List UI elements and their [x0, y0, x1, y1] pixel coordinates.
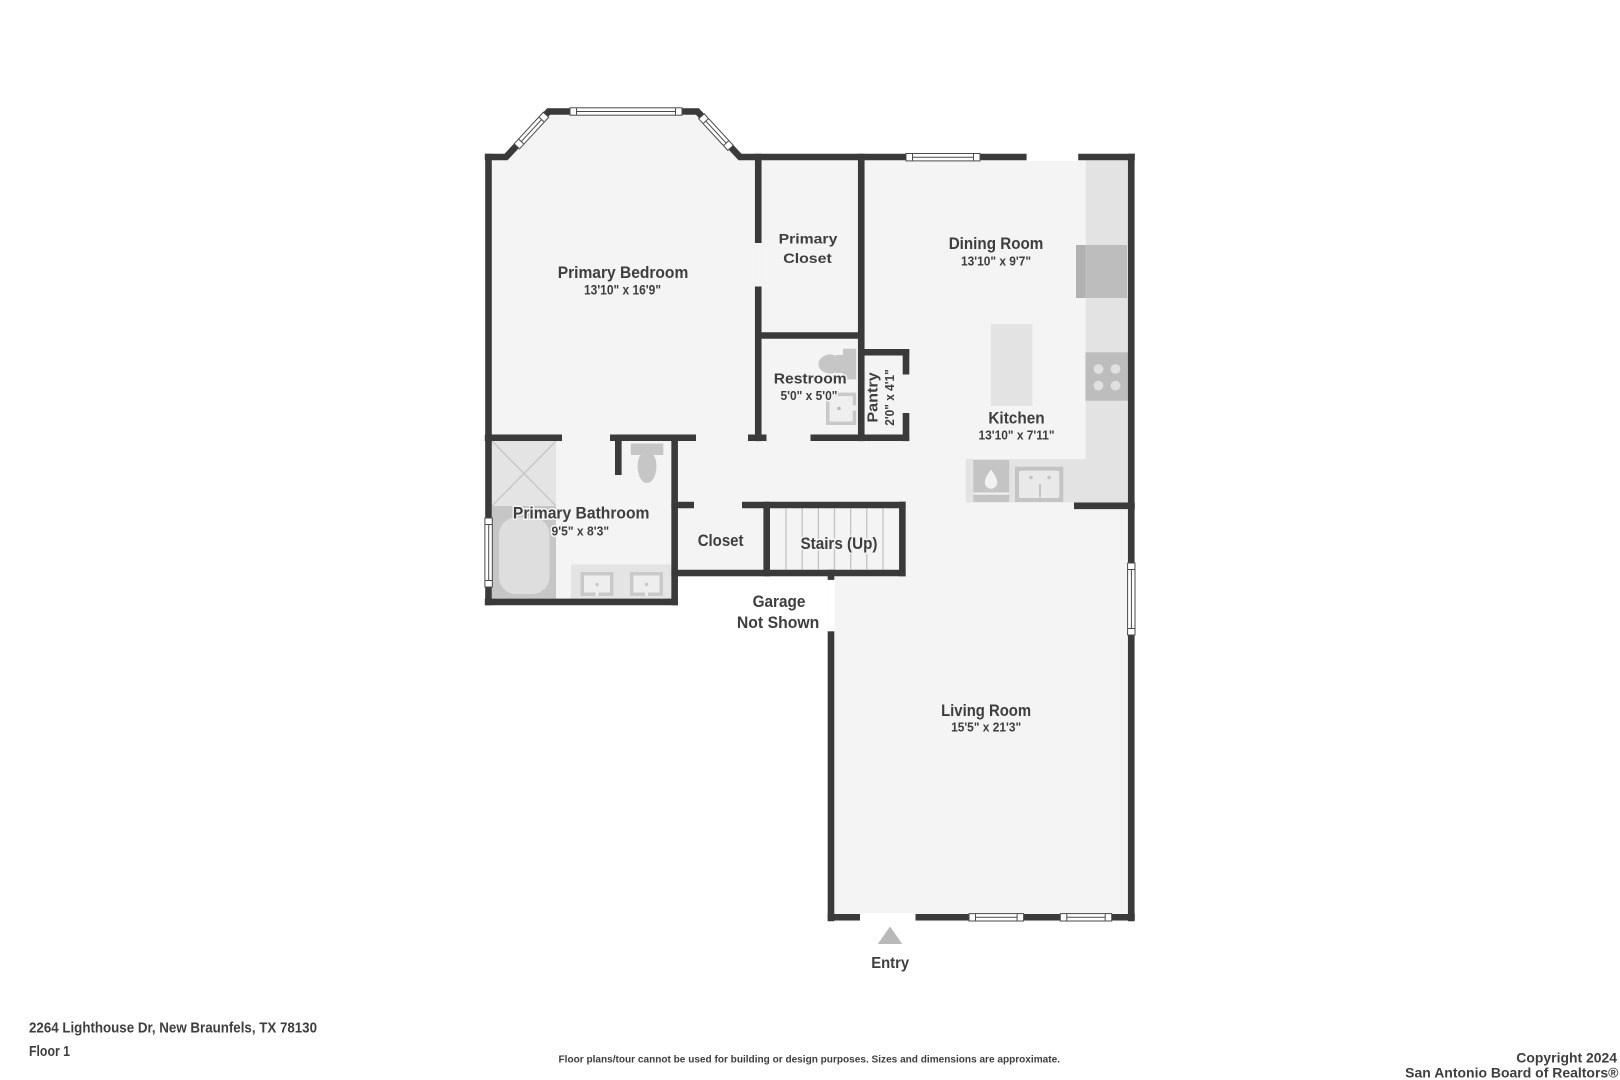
svg-text:Not Shown: Not Shown — [737, 613, 819, 632]
svg-text:Closet: Closet — [783, 250, 832, 266]
svg-text:Restroom: Restroom — [774, 371, 847, 388]
svg-text:13'10" x 7'11": 13'10" x 7'11" — [979, 428, 1055, 443]
svg-text:Copyright 2024: Copyright 2024 — [1516, 1050, 1617, 1065]
svg-text:5'0" x 5'0": 5'0" x 5'0" — [781, 389, 838, 403]
svg-text:Primary Bathroom: Primary Bathroom — [513, 504, 650, 523]
svg-text:2264 Lighthouse Dr, New Braunf: 2264 Lighthouse Dr, New Braunfels, TX 78… — [29, 1020, 317, 1037]
svg-text:2'0" x 4'1": 2'0" x 4'1" — [883, 369, 897, 426]
svg-text:San Antonio Board of Realtors®: San Antonio Board of Realtors® — [1405, 1066, 1618, 1080]
svg-text:Floor 1: Floor 1 — [29, 1043, 70, 1060]
svg-text:Living Room: Living Room — [941, 701, 1031, 720]
svg-text:9'5" x 8'3": 9'5" x 8'3" — [552, 524, 610, 539]
svg-text:15'5" x 21'3": 15'5" x 21'3" — [951, 720, 1021, 735]
svg-text:Dining Room: Dining Room — [949, 234, 1044, 253]
svg-text:Pantry: Pantry — [865, 372, 882, 423]
svg-text:Entry: Entry — [871, 955, 909, 972]
svg-text:Primary: Primary — [779, 231, 838, 247]
svg-text:Primary Bedroom: Primary Bedroom — [558, 263, 689, 282]
svg-text:13'10" x 16'9": 13'10" x 16'9" — [584, 283, 661, 298]
svg-text:Floor plans/tour cannot be use: Floor plans/tour cannot be used for buil… — [559, 1055, 1061, 1066]
svg-text:Garage: Garage — [753, 592, 806, 611]
svg-text:Closet: Closet — [698, 531, 744, 550]
svg-text:13'10" x 9'7": 13'10" x 9'7" — [961, 253, 1031, 268]
svg-text:Kitchen: Kitchen — [988, 409, 1044, 428]
svg-text:Stairs (Up): Stairs (Up) — [801, 534, 878, 553]
